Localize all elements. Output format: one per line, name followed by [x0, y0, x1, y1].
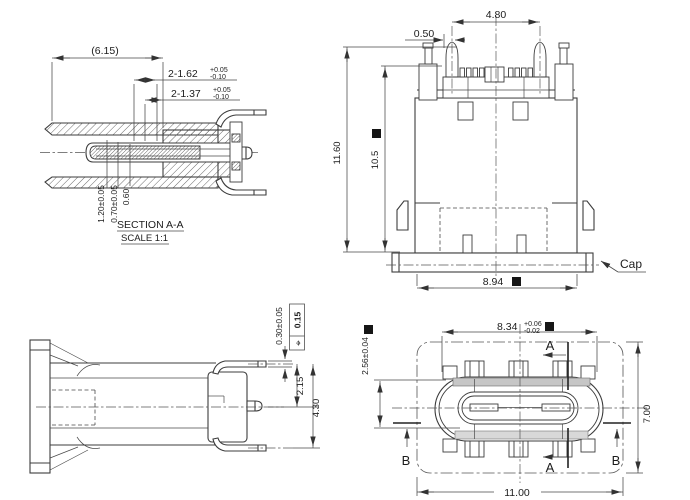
- section-title-block: SECTION A-A SCALE 1:1: [117, 219, 184, 244]
- dim-tongue-tip: 0.60: [121, 188, 131, 205]
- dim-overall-width: 11.00: [504, 487, 530, 499]
- section-aa-view: (6.15) 2-1.62 +0.05 -0.10 2-1.37 +0.05 -…: [40, 45, 266, 244]
- dim-total-height: 11.60: [332, 141, 343, 164]
- dim-slot-a: 2-1.62: [168, 68, 198, 80]
- dim-shell-width-tol-plus: +0.06: [524, 321, 542, 328]
- dim-pin-to-lead: 2.15: [295, 377, 306, 396]
- solder-post-left: [419, 64, 437, 100]
- plan-view: 8.34 +0.06 -0.02 2.56±0.04 7.00 11.00: [360, 321, 653, 499]
- dim-tongue-mid: 0.70±0.05: [109, 185, 119, 223]
- position-symbol-icon: ⌖: [294, 340, 305, 346]
- side-dimensions: 0.30±0.05 ⌖ 0.15 2.15 4.30: [268, 304, 322, 448]
- engineering-drawing-sheet: (6.15) 2-1.62 +0.05 -0.10 2-1.37 +0.05 -…: [0, 0, 690, 500]
- dim-slot-b-tol-plus: +0.05: [213, 87, 231, 94]
- dim-shell-width: 8.34: [497, 321, 518, 333]
- section-mark-b-right: B: [612, 453, 621, 468]
- critical-dim-marker: [545, 322, 554, 331]
- dim-shell-height: 2.56±0.04: [360, 337, 370, 375]
- section-geometry: [40, 110, 266, 195]
- dim-lead-to-lead: 4.30: [311, 399, 322, 418]
- cap-bar: [392, 253, 593, 272]
- dim-overall-length: (6.15): [91, 45, 118, 57]
- dim-shell-width-tol-minus: -0.02: [524, 328, 540, 335]
- critical-dim-marker: [512, 277, 521, 286]
- dim-peg-span: 4.80: [486, 9, 507, 21]
- dim-slot-b-tol-minus: -0.10: [213, 94, 229, 101]
- dim-body-height: 10.5: [370, 151, 381, 170]
- critical-dim-marker: [372, 129, 381, 138]
- dim-base-width: 8.94: [483, 276, 504, 288]
- dim-slot-a-tol-plus: +0.05: [210, 67, 228, 74]
- dim-slot-b: 2-1.37: [171, 88, 201, 100]
- side-view: 0.30±0.05 ⌖ 0.15 2.15 4.30: [30, 304, 322, 473]
- dim-body-depth: 7.00: [642, 405, 653, 424]
- section-mark-a-top: A: [546, 338, 555, 353]
- dim-slot-a-tol-minus: -0.10: [210, 74, 226, 81]
- front-geometry: [386, 16, 599, 278]
- section-scale: SCALE 1:1: [121, 233, 168, 244]
- fcf-tolerance-value: 0.15: [293, 311, 303, 328]
- front-view: 4.80 0.50 11.60 10.5 8.94: [332, 9, 646, 288]
- position-tolerance-frame: ⌖ 0.15: [290, 304, 305, 350]
- dim-lead-height: 0.30±0.05: [274, 307, 284, 345]
- drawing-canvas: (6.15) 2-1.62 +0.05 -0.10 2-1.37 +0.05 -…: [0, 0, 690, 500]
- mount-flange: [30, 340, 50, 473]
- section-mark-b-left: B: [402, 453, 411, 468]
- section-mark-a-bottom: A: [546, 460, 555, 475]
- cap-label: Cap: [620, 257, 642, 271]
- dim-tongue-total: 1.20±0.05: [96, 185, 106, 223]
- side-geometry: [30, 340, 293, 473]
- dim-peg-offset: 0.50: [414, 28, 435, 40]
- section-title: SECTION A-A: [117, 219, 184, 231]
- critical-dim-marker: [364, 325, 373, 334]
- solder-post-right: [555, 64, 573, 100]
